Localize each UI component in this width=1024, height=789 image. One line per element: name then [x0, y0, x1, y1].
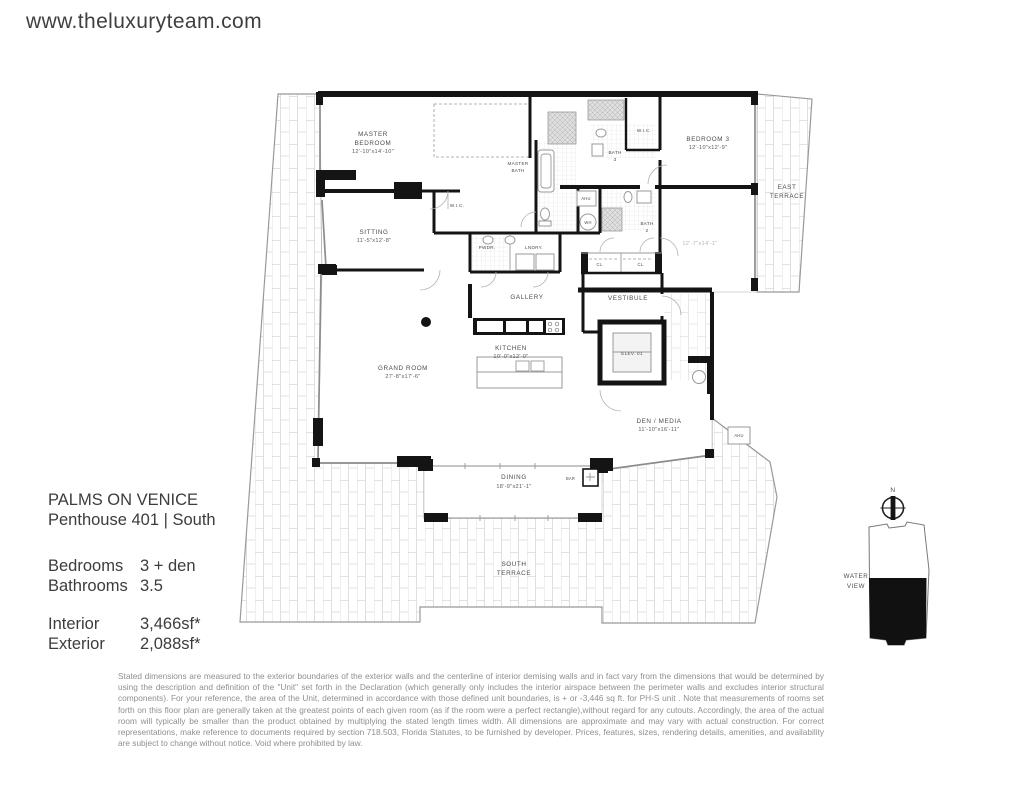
bath3-shower	[588, 100, 624, 120]
label-bath3: BATH	[608, 150, 621, 155]
label-closet: CL.	[638, 262, 645, 267]
master-shower	[548, 112, 576, 144]
label-ahu-a: AHU	[581, 196, 590, 201]
disclaimer-text: Stated dimensions are measured to the ex…	[118, 671, 824, 749]
compass-north-label: N	[890, 487, 895, 494]
label-south-terrace: TERRACE	[497, 570, 531, 577]
label-sitting: SITTING	[359, 229, 388, 236]
label-lndry: LNDRY.	[525, 245, 543, 250]
label-east-terrace: EAST	[778, 184, 797, 191]
label-bar: BAR	[566, 476, 575, 481]
label-elevator: ELEV. 01	[621, 351, 643, 356]
label-ahu-b: AHU	[734, 433, 743, 438]
label-master-wic: W.I.C.	[450, 203, 464, 208]
label-wh: WH	[584, 220, 591, 225]
label-den-media: DEN / MEDIA	[636, 418, 681, 425]
label-bedroom3-wic: W.I.C.	[637, 128, 651, 133]
dim-bedroom2: 12'-7"x14'-1"	[682, 241, 717, 247]
label-master-bath: BATH	[511, 168, 524, 173]
label-kitchen: KITCHEN	[495, 345, 527, 352]
label-master-bedroom: BEDROOM	[355, 140, 392, 147]
elevator-foyer-floor	[664, 294, 710, 380]
water-view-label: VIEW	[847, 583, 865, 590]
label-dining: DINING	[501, 474, 527, 481]
label-bath3: 3	[614, 157, 617, 162]
dim-master-bedroom: 12'-10"x14'-10"	[352, 149, 394, 155]
kitchen-island	[477, 357, 562, 388]
dim-kitchen: 10'-0"x12'-0"	[493, 354, 528, 360]
label-south-terrace: SOUTH	[501, 561, 526, 568]
bar-cabinet	[583, 469, 598, 486]
label-vestibule: VESTIBULE	[608, 295, 648, 302]
water-view-label: WATER	[844, 573, 869, 580]
dim-den-media: 11'-10"x16'-11"	[638, 427, 679, 433]
dim-bedroom3: 12'-10"x12'-9"	[689, 145, 728, 151]
label-grand-room: GRAND ROOM	[378, 365, 428, 372]
label-bath2: 2	[646, 228, 649, 233]
keyplan-unit-highlight	[869, 578, 927, 645]
dim-sitting: 11'-5"x12'-8"	[357, 238, 392, 244]
label-master-bedroom: MASTER	[358, 131, 388, 138]
structural-column	[421, 317, 431, 327]
label-closet: CL.	[597, 262, 604, 267]
dim-dining: 18'-9"x21'-1"	[496, 484, 531, 490]
bath2-shower	[602, 208, 622, 231]
compass-icon	[881, 496, 906, 520]
label-east-terrace: TERRACE	[770, 193, 804, 200]
label-bedroom3: BEDROOM 3	[686, 136, 729, 143]
label-bath2: BATH	[640, 221, 653, 226]
label-pwdr: PWDR.	[479, 245, 496, 250]
keyplan: N WATER VIEW	[844, 487, 929, 645]
label-master-bath: MASTER	[508, 161, 529, 166]
label-gallery: GALLERY	[510, 294, 543, 301]
dim-grand-room: 27'-8"x17'-6"	[385, 374, 420, 380]
